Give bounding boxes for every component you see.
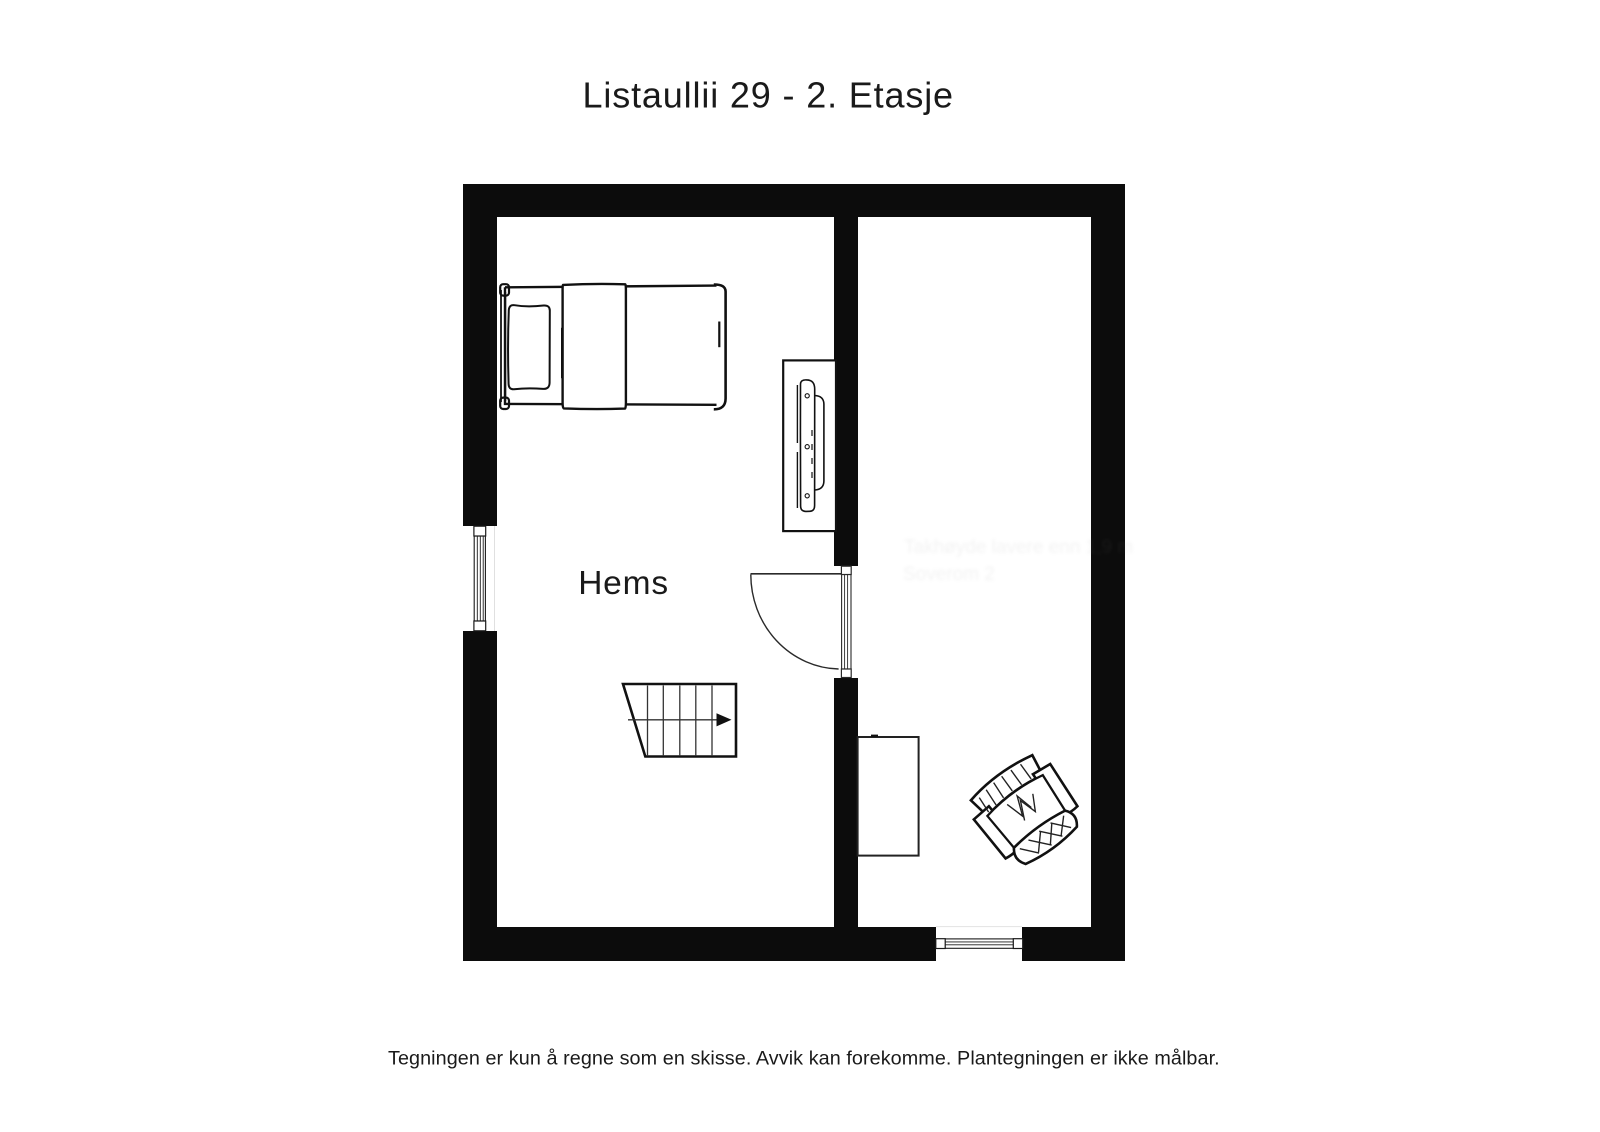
svg-text:Takhøyde lavere enn 1,9 m: Takhøyde lavere enn 1,9 m (904, 537, 1133, 558)
svg-text:Listaullii 29 - 2. Etasje: Listaullii 29 - 2. Etasje (583, 74, 954, 115)
svg-text:Tegningen er kun å regne som e: Tegningen er kun å regne som en skisse. … (388, 1048, 1220, 1070)
svg-text:Soverom 2: Soverom 2 (903, 564, 995, 585)
svg-text:Hems: Hems (578, 565, 669, 602)
